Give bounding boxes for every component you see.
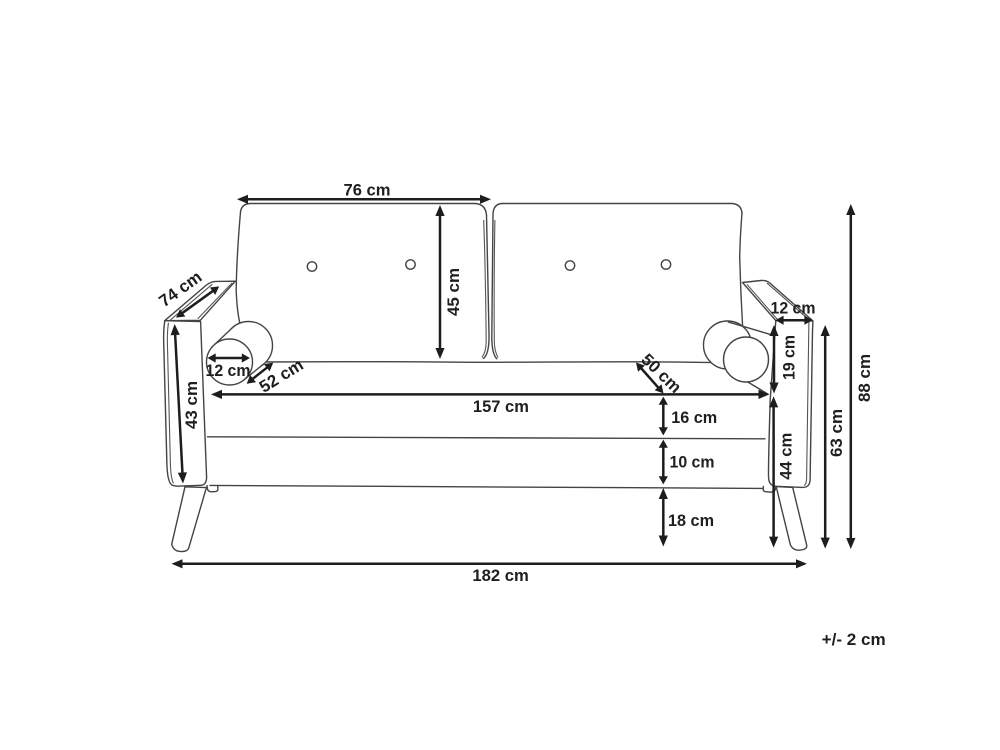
svg-text:16 cm: 16 cm (671, 408, 717, 427)
svg-text:10 cm: 10 cm (670, 453, 715, 472)
svg-text:44 cm: 44 cm (777, 433, 796, 480)
svg-text:157 cm: 157 cm (473, 397, 529, 416)
svg-text:18 cm: 18 cm (668, 511, 714, 530)
svg-text:+/- 2 cm: +/- 2 cm (822, 630, 886, 649)
svg-text:12 cm: 12 cm (206, 361, 251, 380)
svg-text:88 cm: 88 cm (855, 354, 874, 402)
svg-text:45 cm: 45 cm (444, 268, 463, 316)
svg-text:63 cm: 63 cm (827, 409, 846, 457)
svg-text:182 cm: 182 cm (472, 566, 529, 585)
svg-text:43 cm: 43 cm (182, 381, 201, 429)
svg-text:19 cm: 19 cm (780, 335, 799, 380)
svg-text:76 cm: 76 cm (344, 180, 391, 199)
svg-text:12 cm: 12 cm (771, 299, 816, 318)
